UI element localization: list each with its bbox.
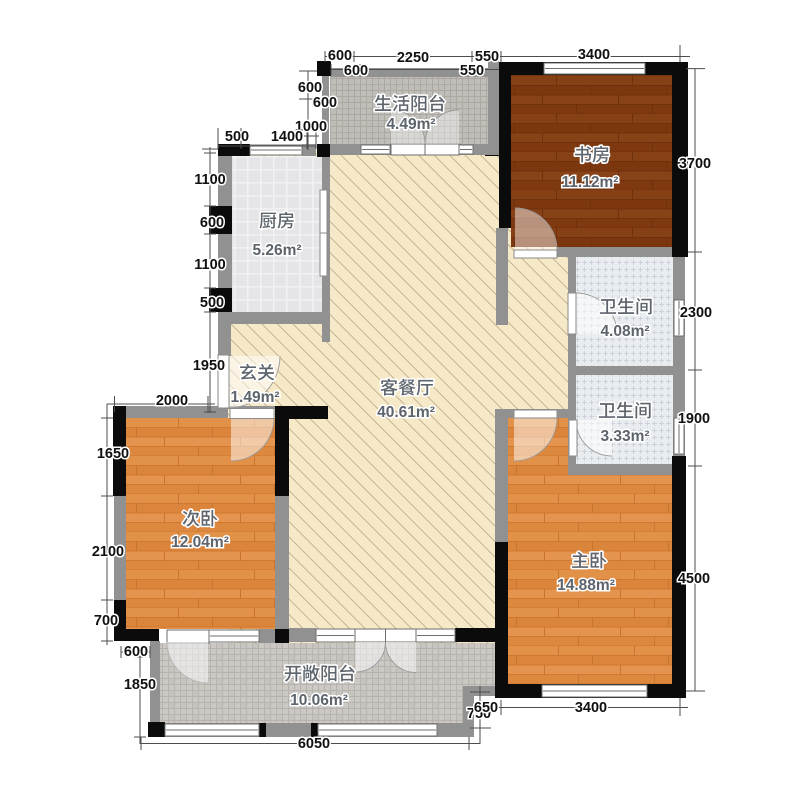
svg-text:11.12m²: 11.12m²: [562, 174, 619, 191]
svg-text:4.49m²: 4.49m²: [386, 116, 435, 133]
svg-text:600: 600: [344, 63, 368, 79]
svg-text:2250: 2250: [397, 50, 429, 66]
svg-text:600: 600: [200, 215, 224, 231]
svg-text:40.61m²: 40.61m²: [377, 404, 435, 421]
svg-text:700: 700: [94, 613, 118, 629]
svg-text:600: 600: [298, 80, 322, 96]
svg-text:1650: 1650: [97, 446, 129, 462]
svg-text:600: 600: [124, 644, 148, 660]
svg-text:2300: 2300: [680, 305, 712, 321]
svg-text:1400: 1400: [271, 129, 303, 145]
svg-text:1100: 1100: [194, 172, 225, 188]
svg-text:1900: 1900: [678, 411, 710, 427]
svg-text:1100: 1100: [194, 257, 225, 273]
svg-text:600: 600: [328, 48, 352, 64]
svg-text:10.06m²: 10.06m²: [290, 692, 348, 709]
svg-text:5.26m²: 5.26m²: [252, 242, 301, 259]
svg-text:3400: 3400: [578, 47, 610, 63]
svg-text:600: 600: [313, 95, 337, 111]
svg-text:2100: 2100: [92, 544, 124, 560]
svg-text:500: 500: [225, 129, 249, 145]
svg-text:3700: 3700: [679, 156, 711, 172]
svg-text:1950: 1950: [193, 358, 225, 374]
svg-text:14.88m²: 14.88m²: [557, 577, 615, 594]
svg-text:500: 500: [200, 295, 224, 311]
svg-text:1.49m²: 1.49m²: [230, 389, 279, 406]
svg-text:3.33m²: 3.33m²: [600, 428, 649, 445]
svg-text:1850: 1850: [124, 677, 156, 693]
svg-text:550: 550: [460, 63, 484, 79]
svg-text:2000: 2000: [156, 393, 188, 409]
svg-text:12.04m²: 12.04m²: [171, 534, 229, 551]
svg-text:3400: 3400: [575, 700, 607, 716]
svg-text:4500: 4500: [678, 571, 710, 587]
svg-text:650: 650: [474, 700, 498, 716]
svg-text:4.08m²: 4.08m²: [600, 323, 649, 340]
svg-text:6050: 6050: [298, 736, 330, 752]
